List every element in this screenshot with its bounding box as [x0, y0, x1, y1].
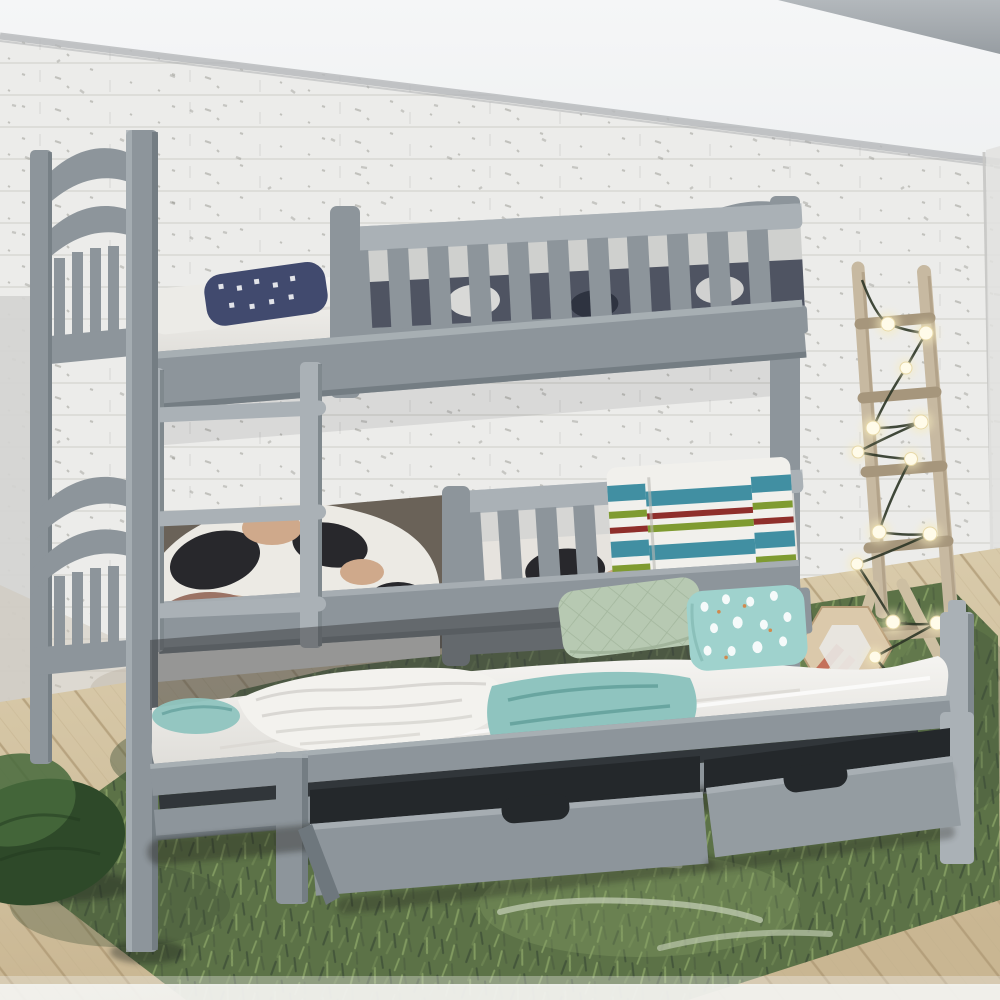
spindle: [108, 566, 119, 650]
photo-bunk-bed-room: [0, 0, 1000, 1000]
light-bulb: [867, 520, 891, 544]
slat: [747, 229, 772, 310]
light-bulb: [896, 358, 916, 378]
spindle: [90, 248, 101, 340]
blanket-corner-piece: [152, 698, 240, 734]
scene-canvas: [0, 0, 1000, 1000]
slat: [427, 246, 452, 327]
light-bulb: [881, 610, 905, 634]
cow-tan-patch: [340, 559, 384, 585]
light-bulb: [848, 442, 868, 462]
light-bulb: [918, 522, 942, 546]
slat: [587, 237, 612, 318]
slat: [547, 240, 572, 321]
bottom-fade-strip: [0, 984, 1000, 1000]
slat: [707, 231, 732, 312]
spindle: [54, 576, 65, 650]
light-bulb: [900, 448, 922, 470]
teal-patterned-pillow: [685, 584, 808, 672]
slat: [667, 233, 692, 314]
spindle: [108, 246, 119, 340]
slat: [467, 244, 492, 325]
light-bulb: [847, 554, 867, 574]
light-bulb: [861, 416, 885, 440]
light-bulb: [865, 647, 885, 667]
slat: [387, 248, 412, 329]
spindle: [54, 258, 65, 340]
slat: [627, 235, 652, 316]
light-bulb: [909, 410, 933, 434]
light-bulb: [876, 312, 900, 336]
spindle: [72, 572, 83, 650]
post-cap: [276, 752, 308, 758]
slat: [507, 242, 532, 323]
light-bulb: [914, 321, 938, 345]
spindle: [90, 568, 101, 650]
spindle: [72, 252, 83, 340]
leg-highlight: [126, 130, 132, 952]
decor-ladder-rung: [863, 392, 936, 398]
